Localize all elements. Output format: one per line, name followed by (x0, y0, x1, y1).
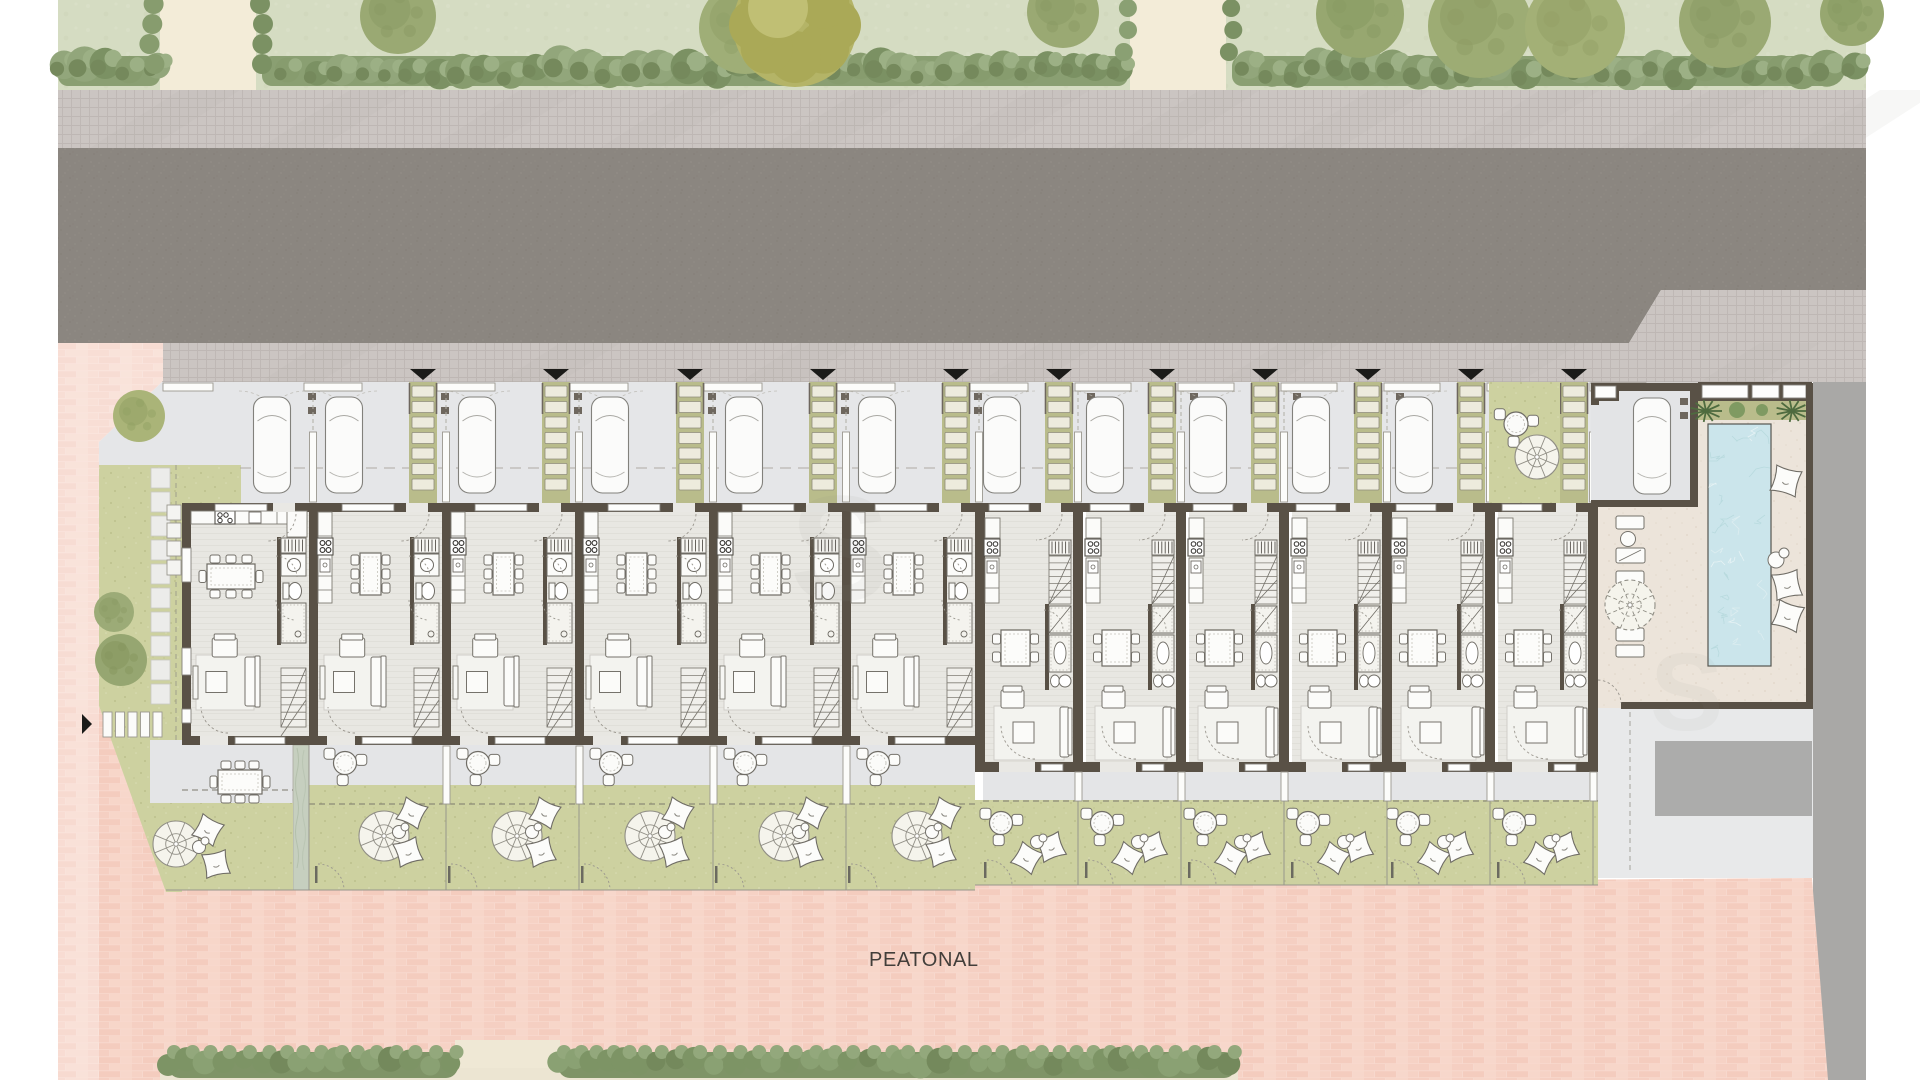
svg-text:S: S (1650, 631, 1723, 754)
svg-text:PEATONAL: PEATONAL (869, 949, 979, 971)
svg-text:S: S (790, 464, 890, 632)
